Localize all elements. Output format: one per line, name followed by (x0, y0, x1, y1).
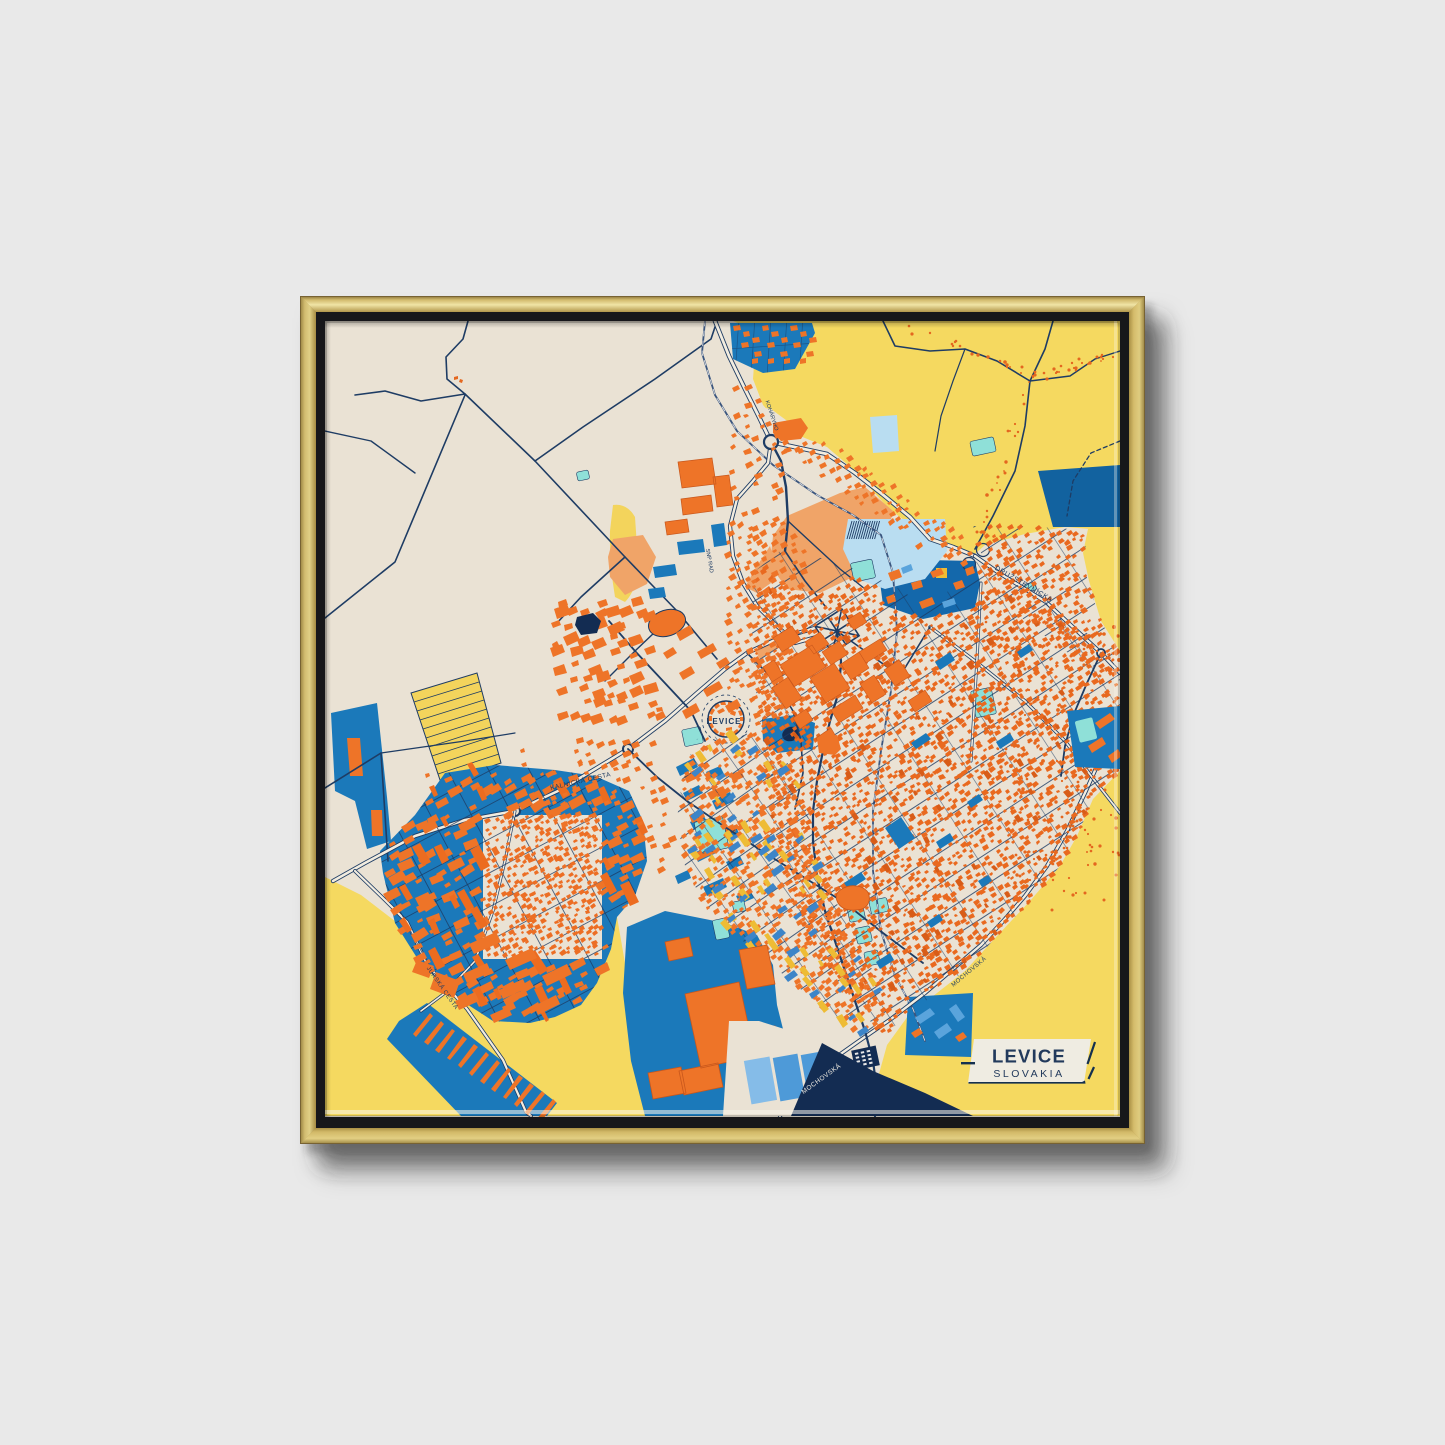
svg-text:LEVICE: LEVICE (992, 1046, 1066, 1067)
svg-text:LEVICE: LEVICE (707, 717, 742, 726)
svg-text:SLOVAKIA: SLOVAKIA (993, 1068, 1064, 1080)
